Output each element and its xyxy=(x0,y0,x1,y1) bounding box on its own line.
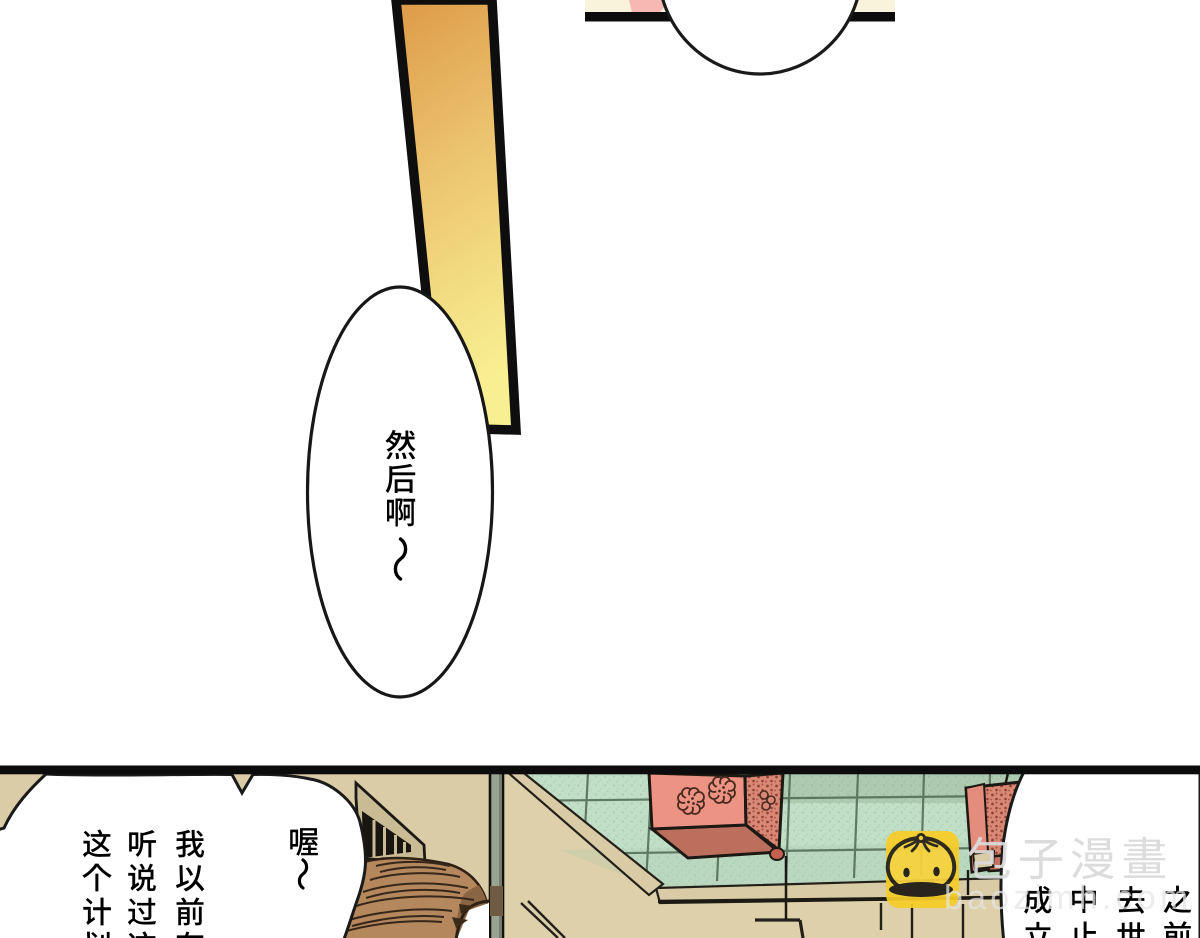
svg-text:baozimh.com: baozimh.com xyxy=(944,879,1192,917)
